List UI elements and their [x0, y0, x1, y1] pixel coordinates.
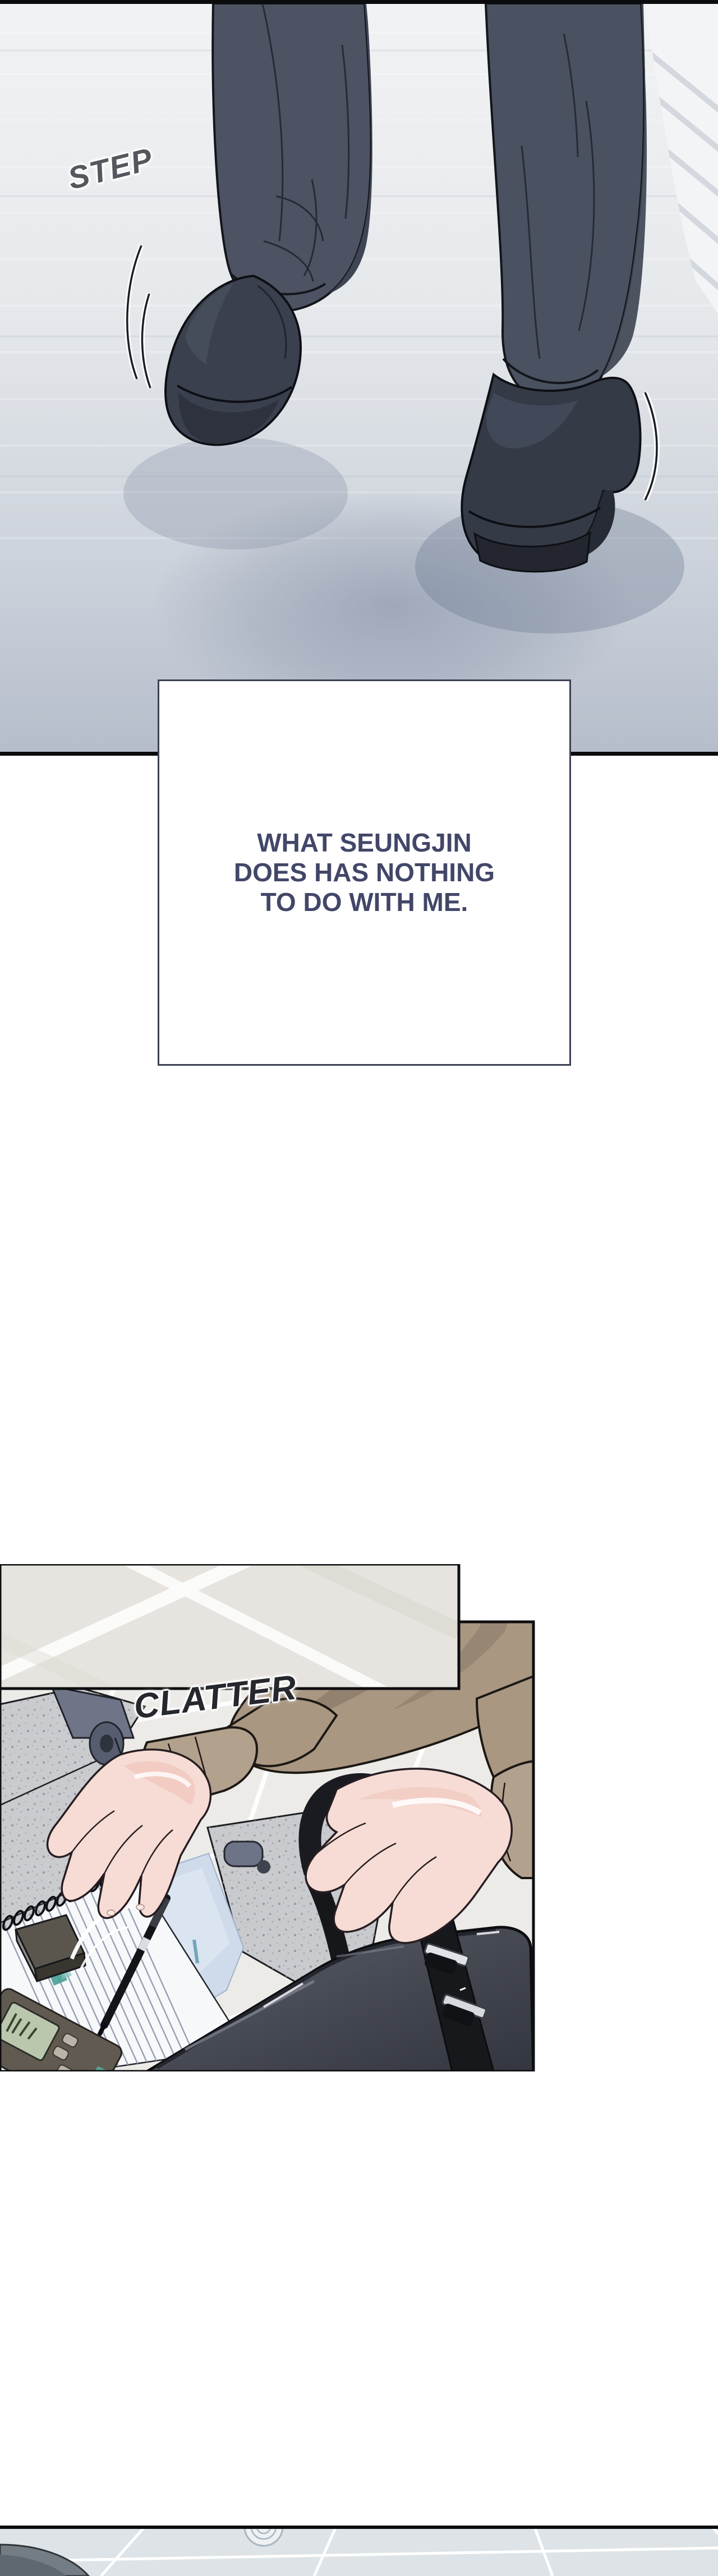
panel-bottom-tiles [0, 2526, 718, 2576]
shoe-shadow-left [123, 437, 348, 549]
dialogue-line-2: DOES HAS NOTHING [234, 858, 495, 887]
panel3-top-border [0, 2526, 718, 2529]
panel-briefcase-scene: CLATTER [0, 1564, 537, 2071]
webtoon-page: STEP WHAT SEUNGJIN DOES HAS NOTHING TO D… [0, 0, 718, 2576]
walking-legs-art [0, 0, 718, 756]
right-leg [486, 3, 647, 403]
briefcase-scene-art [0, 1564, 537, 2071]
left-leg [213, 3, 372, 311]
dialogue-line-3: TO DO WITH ME. [234, 887, 495, 917]
panel1-top-border [0, 0, 718, 4]
dialogue-box: WHAT SEUNGJIN DOES HAS NOTHING TO DO WIT… [158, 679, 571, 1066]
bottom-tiles-art [0, 2526, 718, 2576]
dialogue-line-1: WHAT SEUNGJIN [234, 828, 495, 858]
dialogue-text: WHAT SEUNGJIN DOES HAS NOTHING TO DO WIT… [234, 828, 495, 917]
panel-walking-legs: STEP [0, 0, 718, 756]
